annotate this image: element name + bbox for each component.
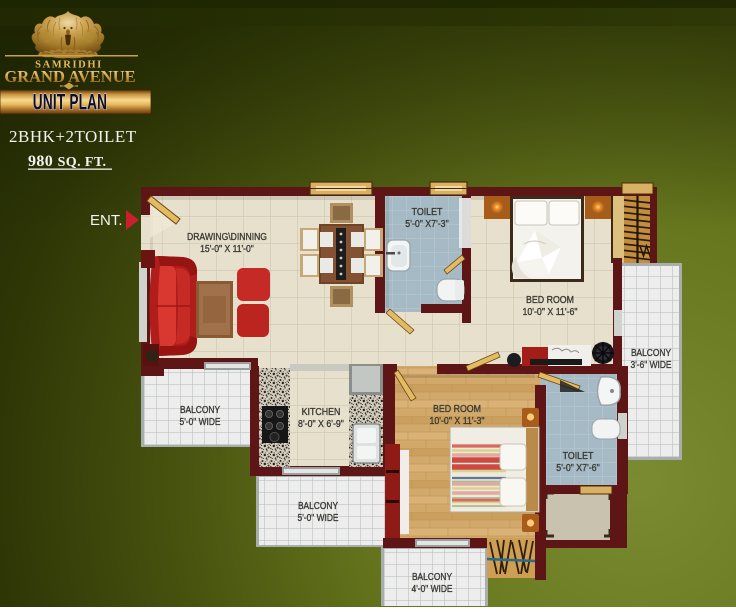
- svg-text:5'-0" X7'-3": 5'-0" X7'-3": [405, 218, 449, 230]
- svg-text:5'-0" X7'-6": 5'-0" X7'-6": [556, 462, 600, 474]
- svg-text:8'-0" X 6'-9": 8'-0" X 6'-9": [298, 418, 344, 430]
- svg-text:10'-0" X 11'-3": 10'-0" X 11'-3": [429, 415, 485, 427]
- svg-text:5'-0" WIDE: 5'-0" WIDE: [180, 416, 221, 428]
- svg-text:TOILET: TOILET: [563, 450, 594, 462]
- svg-text:10'-0" X 11'-6": 10'-0" X 11'-6": [522, 306, 578, 318]
- svg-text:2BHK+2TOILET: 2BHK+2TOILET: [9, 127, 137, 146]
- svg-text:DRAWING\DINNING: DRAWING\DINNING: [187, 231, 267, 243]
- svg-text:3'-6" WIDE: 3'-6" WIDE: [631, 359, 672, 371]
- svg-text:BALCONY: BALCONY: [180, 404, 221, 416]
- svg-text:BED ROOM: BED ROOM: [526, 294, 574, 306]
- svg-text:UNIT PLAN: UNIT PLAN: [33, 89, 107, 114]
- svg-text:TOILET: TOILET: [412, 206, 443, 218]
- svg-text:BALCONY: BALCONY: [631, 347, 672, 359]
- svg-text:15'-0" X 11'-0": 15'-0" X 11'-0": [200, 243, 254, 255]
- svg-text:BED ROOM: BED ROOM: [433, 403, 481, 415]
- svg-text:5'-0" WIDE: 5'-0" WIDE: [298, 512, 339, 524]
- svg-text:ENT.: ENT.: [90, 212, 123, 229]
- svg-text:980 SQ. FT.: 980 SQ. FT.: [28, 153, 106, 170]
- svg-text:4'-0" WIDE: 4'-0" WIDE: [412, 583, 453, 595]
- svg-text:BALCONY: BALCONY: [298, 500, 339, 512]
- svg-text:KITCHEN: KITCHEN: [302, 406, 341, 418]
- svg-text:BALCONY: BALCONY: [412, 571, 453, 583]
